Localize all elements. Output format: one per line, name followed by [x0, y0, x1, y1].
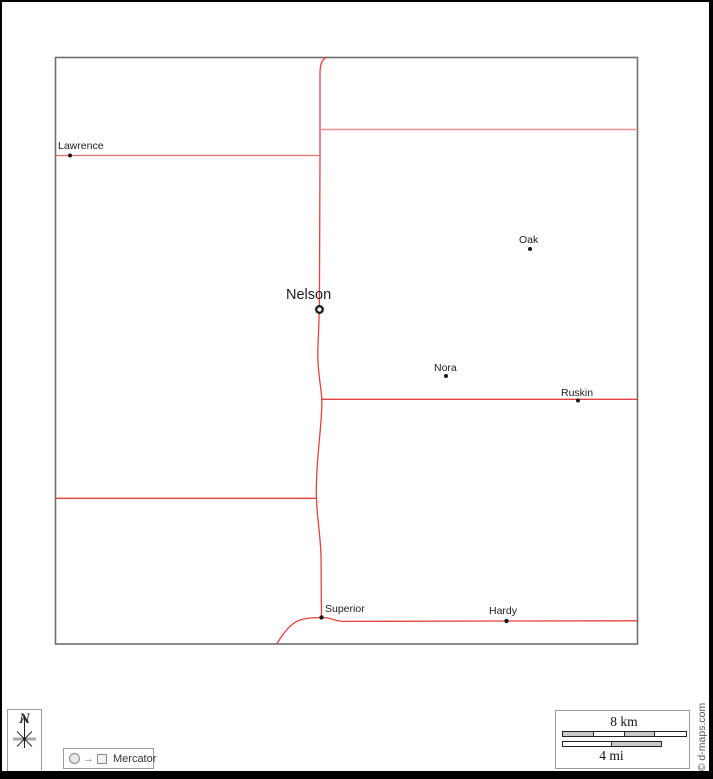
flat-map-square-icon	[97, 754, 107, 764]
frame-bottom	[0, 771, 713, 779]
scale-km-seg-4	[655, 732, 686, 736]
town-label-nora: Nora	[434, 362, 457, 374]
town-label-lawrence: Lawrence	[58, 140, 104, 152]
copyright-credit: © d-maps.com	[696, 696, 708, 778]
town-ring-nelson	[316, 306, 323, 313]
frame-top	[0, 0, 713, 2]
scale-km-seg-1	[563, 732, 594, 736]
scale-km-label: 8 km	[562, 714, 686, 730]
scale-km-seg-3	[625, 732, 656, 736]
town-label-ruskin: Ruskin	[561, 387, 593, 399]
town-dot-superior	[319, 615, 323, 619]
town-dot-nora	[444, 374, 448, 378]
scale-bar-km	[562, 731, 687, 737]
projection-box: → Mercator	[63, 748, 154, 769]
scale-mi-seg-2	[612, 742, 661, 746]
town-dot-oak	[528, 247, 532, 251]
frame-right	[709, 0, 713, 779]
scale-mi-label: 4 mi	[562, 748, 661, 764]
map-page: Lawrence Oak Nelson Nora Ruskin Superior…	[0, 0, 713, 779]
scale-box: 8 km 4 mi	[555, 710, 690, 769]
scale-bar-mi	[562, 741, 662, 747]
scale-mi-seg-1	[563, 742, 612, 746]
scale-km-seg-2	[594, 732, 625, 736]
town-label-oak: Oak	[519, 234, 538, 246]
map-canvas	[0, 0, 713, 779]
road-superior-hardy	[277, 617, 638, 643]
frame-left	[0, 0, 2, 779]
town-label-superior: Superior	[325, 603, 365, 615]
arrow-right-icon: →	[83, 753, 94, 765]
town-dot-hardy	[504, 619, 508, 623]
north-arrow-box: N	[7, 709, 42, 772]
town-label-nelson: Nelson	[286, 287, 331, 303]
road-north-south-main	[316, 58, 326, 618]
town-dot-lawrence	[68, 154, 72, 158]
projection-label: Mercator	[113, 753, 156, 765]
county-border	[56, 58, 638, 645]
town-label-hardy: Hardy	[489, 605, 517, 617]
globe-circle-icon	[69, 753, 80, 764]
town-dot-ruskin	[576, 399, 580, 403]
compass-star-icon	[8, 710, 41, 752]
